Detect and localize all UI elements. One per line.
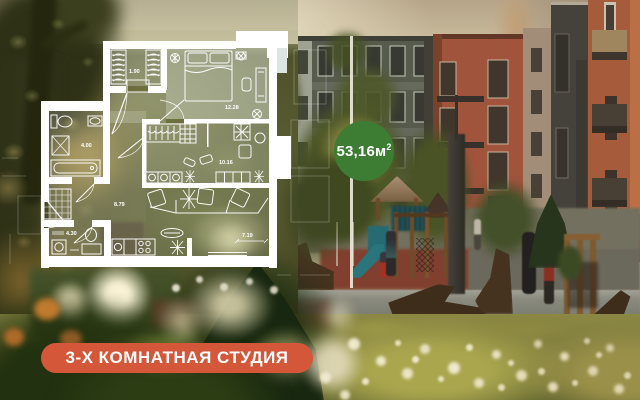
svg-text:1.90: 1.90 bbox=[129, 69, 140, 75]
svg-text:8.79: 8.79 bbox=[114, 202, 125, 208]
svg-text:4.30: 4.30 bbox=[66, 231, 77, 237]
svg-text:7.19: 7.19 bbox=[242, 233, 253, 239]
svg-text:12.28: 12.28 bbox=[225, 105, 239, 111]
svg-text:4.00: 4.00 bbox=[81, 143, 92, 149]
svg-text:10.16: 10.16 bbox=[219, 160, 233, 166]
